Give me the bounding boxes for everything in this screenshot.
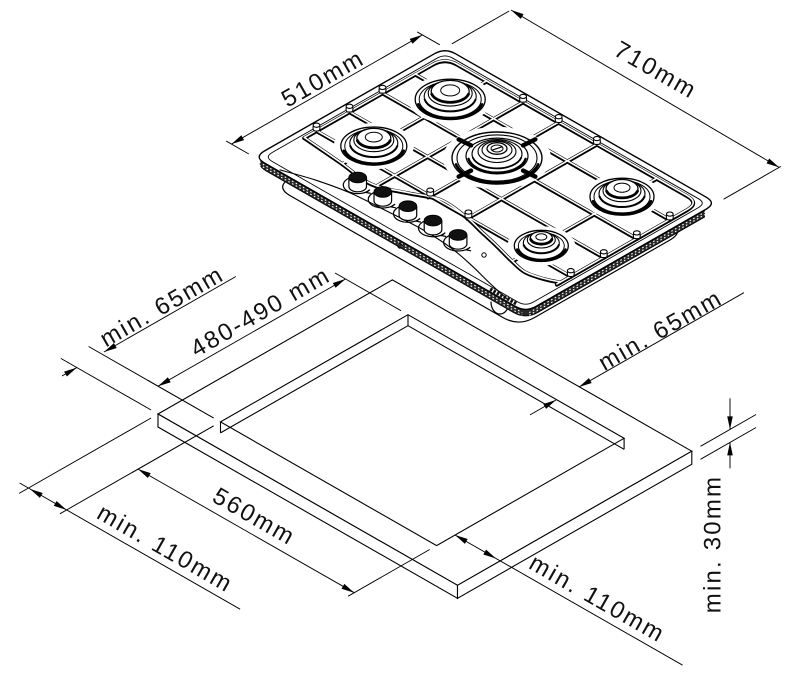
- svg-text:min. 30mm: min. 30mm: [699, 475, 726, 614]
